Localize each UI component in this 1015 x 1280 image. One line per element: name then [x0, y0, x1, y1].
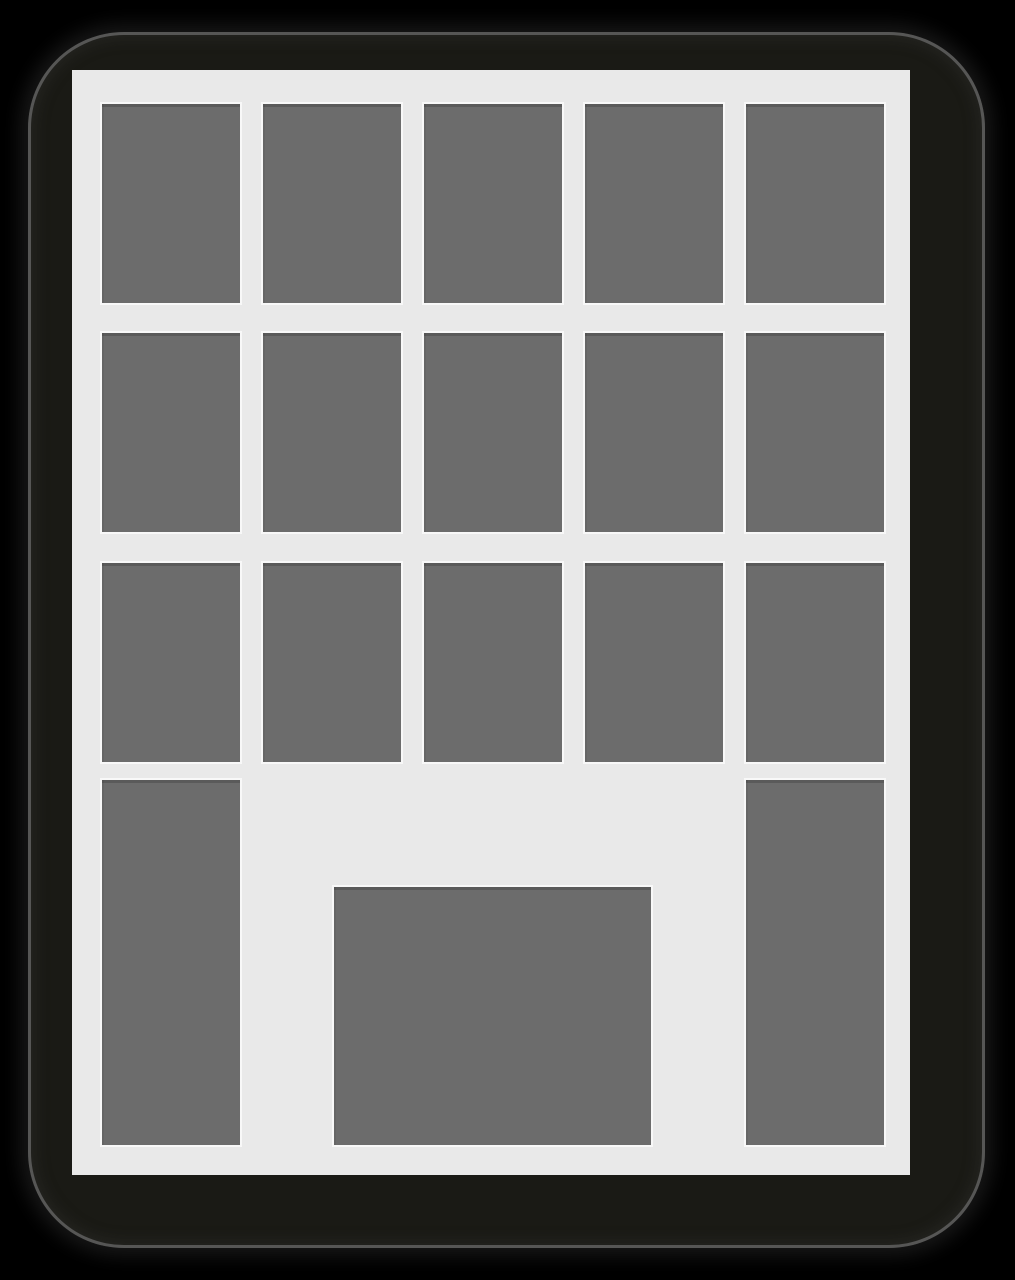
window-r2-c5	[746, 333, 884, 532]
window-r3-c2	[263, 563, 401, 762]
window-r1-c5	[746, 104, 884, 303]
building-facade	[72, 70, 910, 1175]
window-r1-c3	[424, 104, 562, 303]
building-body	[28, 32, 985, 1248]
window-r2-c1	[102, 333, 240, 532]
side-window-left	[102, 780, 240, 1145]
window-r3-c5	[746, 563, 884, 762]
window-r3-c3	[424, 563, 562, 762]
window-r2-c4	[585, 333, 723, 532]
window-r3-c4	[585, 563, 723, 762]
window-r1-c4	[585, 104, 723, 303]
side-window-right	[746, 780, 884, 1145]
door	[334, 887, 651, 1145]
window-r1-c2	[263, 104, 401, 303]
window-r1-c1	[102, 104, 240, 303]
window-r2-c3	[424, 333, 562, 532]
window-r2-c2	[263, 333, 401, 532]
window-r3-c1	[102, 563, 240, 762]
